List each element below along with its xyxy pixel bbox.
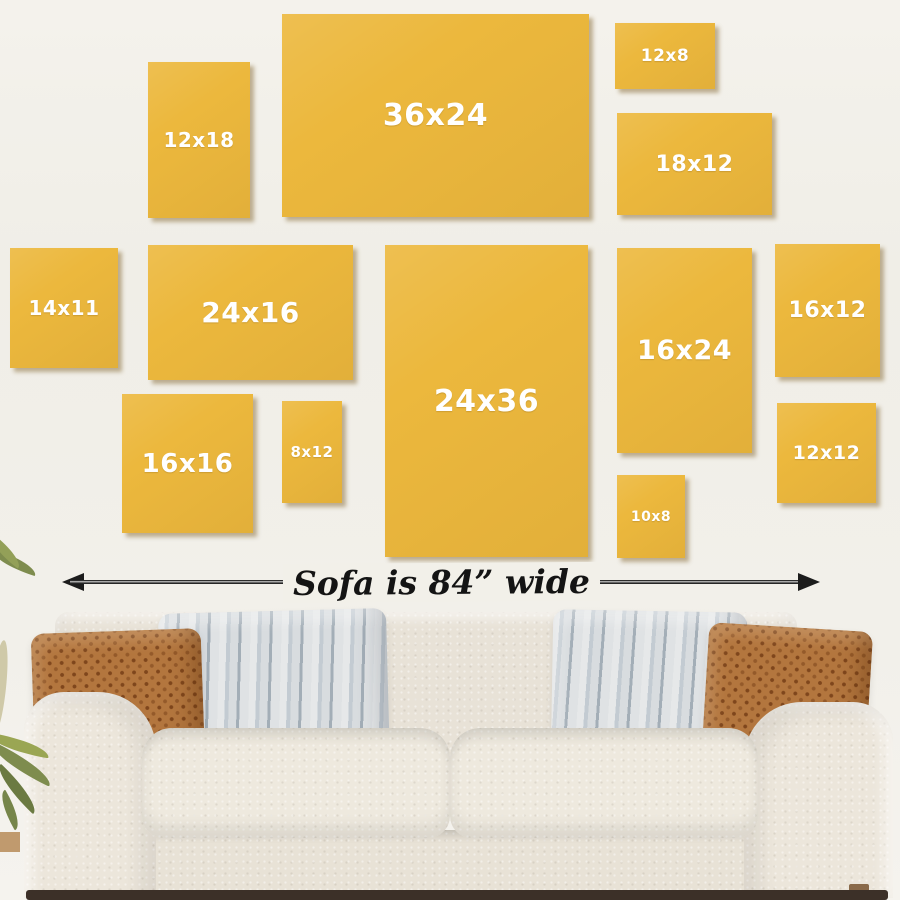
sofa-width-arrow: Sofa is 84” wide <box>64 563 818 601</box>
frame-size-label: 18x12 <box>656 152 734 177</box>
frame-18x12: 18x12 <box>617 113 772 215</box>
frame-12x12: 12x12 <box>777 403 876 503</box>
frame-14x11: 14x11 <box>10 248 118 368</box>
wall-art-size-guide: 12x18 36x24 12x8 18x12 14x11 24x16 24x36… <box>0 0 900 900</box>
frame-size-label: 24x16 <box>201 296 300 329</box>
sofa-arm-right <box>744 702 893 898</box>
arrow-right-icon <box>798 573 820 591</box>
frame-size-label: 16x24 <box>637 335 732 366</box>
frame-10x8: 10x8 <box>617 475 685 558</box>
frame-16x24: 16x24 <box>617 248 752 453</box>
frame-36x24: 36x24 <box>282 14 589 217</box>
frame-24x16: 24x16 <box>148 245 353 380</box>
frame-size-label: 36x24 <box>383 98 488 133</box>
frame-size-label: 12x12 <box>793 442 861 464</box>
frame-8x12: 8x12 <box>282 401 342 503</box>
sofa-arm-left <box>24 692 156 898</box>
frame-size-label: 8x12 <box>291 443 334 461</box>
frame-size-label: 12x8 <box>641 46 689 66</box>
frame-24x36: 24x36 <box>385 245 588 557</box>
frame-size-label: 16x16 <box>142 449 234 479</box>
frame-16x12: 16x12 <box>775 244 880 377</box>
plant-stem <box>0 640 11 736</box>
frame-size-label: 12x18 <box>163 128 234 152</box>
frame-size-label: 16x12 <box>789 298 867 323</box>
frame-size-label: 10x8 <box>631 509 671 525</box>
sofa-seat-cushion-right <box>450 728 758 838</box>
frame-size-label: 14x11 <box>28 296 99 320</box>
sofa-seat-cushion-left <box>142 728 450 838</box>
frame-size-label: 24x36 <box>434 384 539 419</box>
frame-12x18: 12x18 <box>148 62 250 218</box>
sofa-width-label: Sofa is 84” wide <box>282 561 599 602</box>
frame-12x8: 12x8 <box>615 23 715 89</box>
floor-strip <box>0 832 20 852</box>
floor-shadow <box>26 890 888 900</box>
frame-16x16: 16x16 <box>122 394 253 533</box>
